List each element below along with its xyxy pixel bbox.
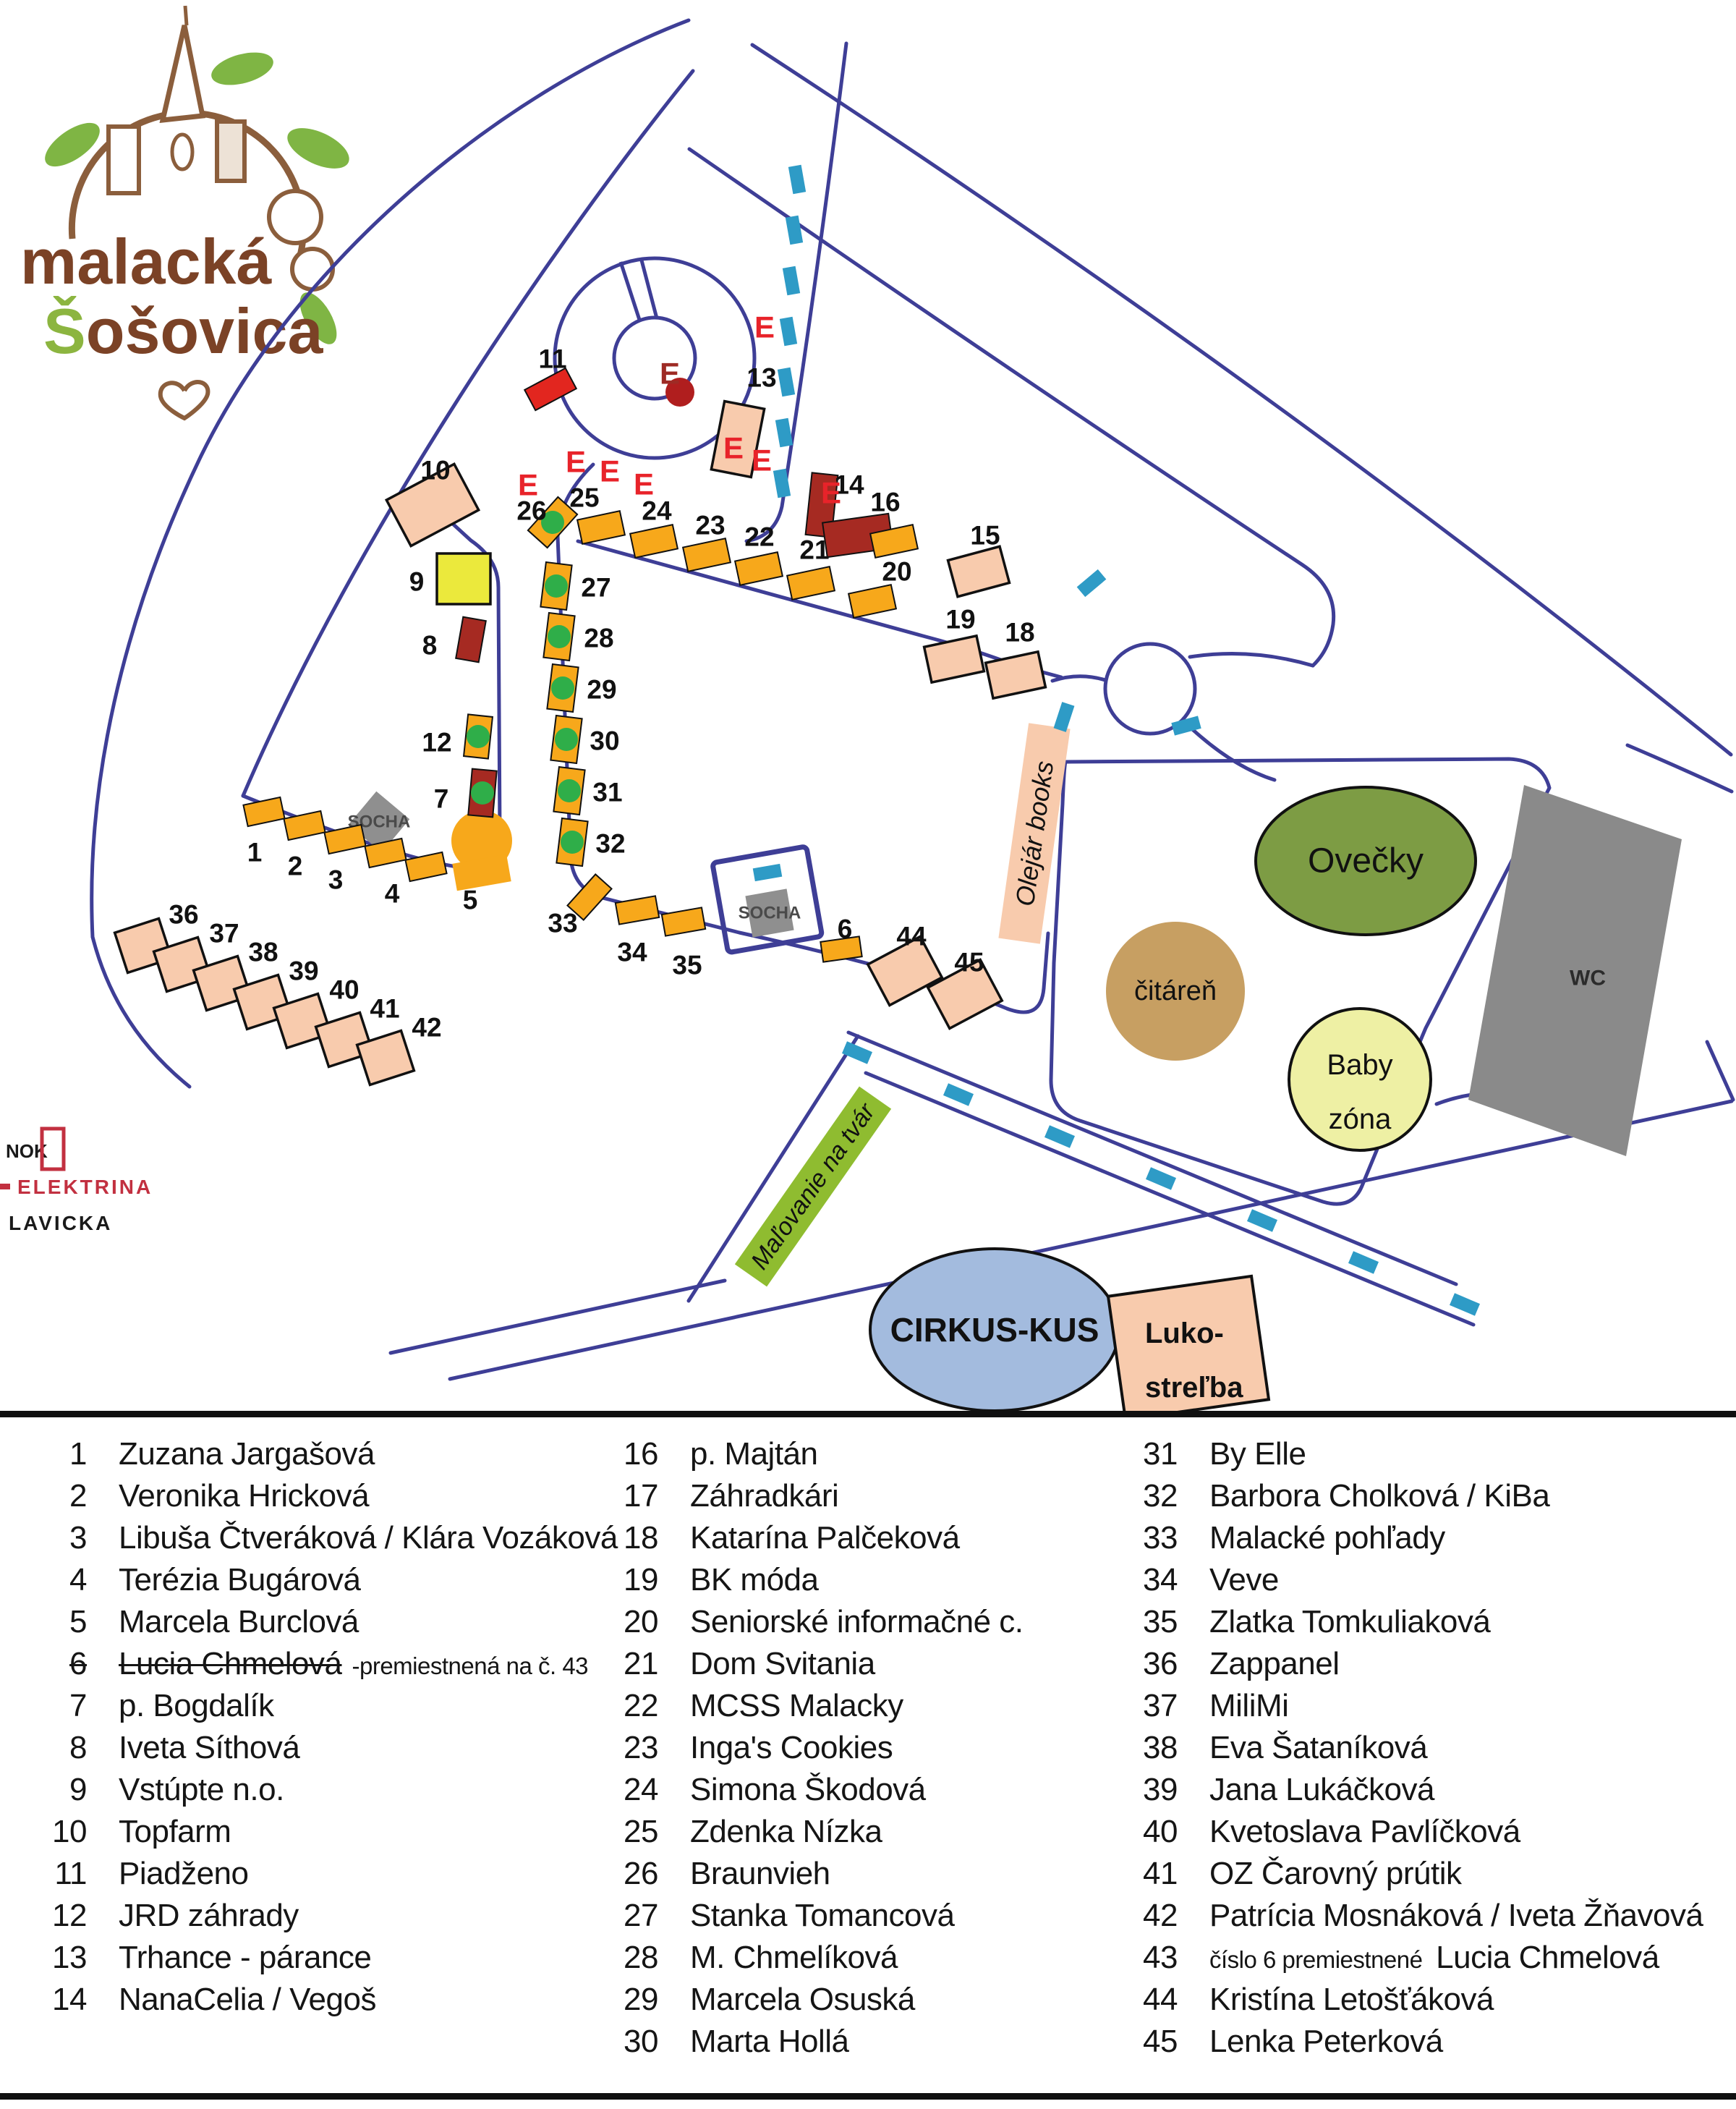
legend-entry-35: 35Zlatka Tomkuliaková (1120, 1604, 1735, 1646)
roundabout-circle (1105, 644, 1195, 734)
logo-leaf-3 (281, 120, 355, 177)
legend-entry-name: Terézia Bugárová (119, 1562, 360, 1598)
electric-dash-5 (775, 418, 793, 448)
stall-23 (683, 538, 731, 572)
legend-entry-name: Lenka Peterková (1209, 2024, 1443, 2060)
stall-33-number: 33 (548, 909, 577, 938)
legend-entry-name-text: Kvetoslava Pavlíčková (1209, 1814, 1520, 1849)
logo-text-s: Š (43, 295, 86, 367)
stall-7 (468, 769, 496, 818)
logo-leaf-2 (208, 46, 276, 90)
legend-entry-name-text: Simona Škodová (690, 1772, 926, 1807)
road-line-15 (391, 1281, 725, 1353)
legend-entry-32: 32Barbora Cholková / KiBa (1120, 1478, 1735, 1520)
legend-entry-8: 8Iveta Síthová (29, 1730, 593, 1772)
stall-35-number: 35 (672, 951, 702, 980)
legend-entry-18: 18Katarína Palčeková (600, 1520, 1107, 1562)
legend-entry-name-text: Barbora Cholková / KiBa (1209, 1478, 1549, 1514)
legend-entry-name-text: Lucia Chmelová (1436, 1940, 1659, 1975)
legend-entry-10: 10Topfarm (29, 1814, 593, 1856)
logo-tower-left (109, 127, 139, 193)
roads-layer (92, 20, 1733, 1379)
stall-32 (556, 818, 587, 866)
stall-9-rect (437, 553, 490, 604)
legend-entry-name-text: Záhradkári (690, 1478, 838, 1514)
electric-dash-2 (783, 266, 800, 296)
legend-entry-number: 9 (29, 1772, 87, 1808)
stall-29 (547, 664, 578, 712)
stall-15-number: 15 (970, 521, 1000, 551)
legend-entry-name: Zuzana Jargašová (119, 1436, 375, 1472)
electric-dash-14 (1146, 1167, 1176, 1189)
legend-entry-name-text: OZ Čarovný prútik (1209, 1856, 1461, 1891)
legend-entry-number: 29 (600, 1982, 658, 2018)
legend-entry-28: 28M. Chmelíková (600, 1940, 1107, 1982)
legend-entry-name: By Elle (1209, 1436, 1306, 1472)
legend-entry-31: 31By Elle (1120, 1436, 1735, 1478)
electricity-marker-2: E (518, 468, 538, 502)
electric-dash-16 (1348, 1251, 1379, 1273)
road-line-1 (243, 71, 693, 796)
legend-entry-number: 17 (600, 1478, 658, 1514)
legend-entry-number: 12 (29, 1898, 87, 1934)
legend-entry-name-text: Inga's Cookies (690, 1730, 893, 1765)
legend-entry-name-text: Eva Šataníková (1209, 1730, 1427, 1765)
legend-entry-name-text: Jana Lukáčková (1209, 1772, 1434, 1807)
key-lavicka-label: LAVICKA (9, 1212, 112, 1234)
legend-column-3: 31By Elle32Barbora Cholková / KiBa33Mala… (1120, 1436, 1735, 2066)
legend-entry-name: NanaCelia / Vegoš (119, 1982, 376, 2018)
legend-entry-name-text: Zdenka Nízka (690, 1814, 882, 1849)
map-key: NOK ELEKTRINA LAVICKA (0, 1129, 153, 1234)
electric-dash-8 (1054, 702, 1075, 732)
road-line-6 (752, 45, 1731, 755)
logo-leaf-1 (38, 114, 106, 174)
legend-entry-4: 4Terézia Bugárová (29, 1562, 593, 1604)
legend-top-rule (0, 1411, 1736, 1417)
road-line-10 (1190, 654, 1313, 666)
legend-entry-name-text: Libuša Čtveráková / Klára Vozáková (119, 1520, 618, 1556)
stall-44-number: 44 (896, 922, 927, 951)
stall-24 (630, 525, 678, 558)
logo-berry-2 (292, 249, 333, 289)
legend-entry-name: číslo 6 premiestnené Lucia Chmelová (1209, 1940, 1659, 1976)
legend-entry-name-text: p. Majtán (690, 1436, 817, 1472)
legend-entry-number: 31 (1120, 1436, 1178, 1472)
stall-29-number: 29 (587, 675, 616, 705)
stall-1-number: 1 (247, 838, 263, 867)
event-site-map: malacká Šošovica Olejár booksOvečkyčitár… (0, 0, 1736, 1411)
stall-7-green-dot (471, 781, 494, 805)
baby-zona-label: Baby (1327, 1049, 1392, 1081)
stall-1 (243, 797, 284, 826)
stall-4-number: 4 (385, 879, 400, 909)
legend-entry-12: 12JRD záhrady (29, 1898, 593, 1940)
legend-entry-number: 5 (29, 1604, 87, 1640)
legend-entry-name-text: Patrícia Mosnáková / Iveta Žňavová (1209, 1898, 1703, 1933)
legend-entry-name: MiliMi (1209, 1688, 1288, 1724)
stall-7-number: 7 (434, 784, 449, 814)
legend-entry-name: Malacké pohľady (1209, 1520, 1445, 1556)
legend-entry-name: BK móda (690, 1562, 818, 1598)
stall-2-number: 2 (288, 852, 303, 881)
legend-entry-name: Trhance - párance (119, 1940, 371, 1976)
legend-entry-number: 44 (1120, 1982, 1178, 2018)
stall-9-number: 9 (409, 567, 425, 597)
logo-text-line1: malacká (20, 226, 272, 297)
stall-20-number: 20 (882, 557, 911, 587)
stall-22-number: 22 (744, 522, 774, 552)
legend-entry-name-text: Lenka Peterková (1209, 2024, 1443, 2059)
stall-5-number: 5 (463, 886, 478, 915)
legend-entry-38: 38Eva Šataníková (1120, 1730, 1735, 1772)
stall-34-rect (616, 896, 659, 924)
legend-entry-1: 1Zuzana Jargašová (29, 1436, 593, 1478)
stall-15-rect (948, 546, 1010, 596)
stall-42-number: 42 (412, 1013, 441, 1043)
legend-entry-number: 27 (600, 1898, 658, 1934)
legend-entry-name: Zdenka Nízka (690, 1814, 882, 1850)
map-canvas: malacká Šošovica Olejár booksOvečkyčitár… (0, 0, 1736, 1411)
road-line-7 (689, 149, 1334, 666)
legend-entry-name-text: Stanka Tomancová (690, 1898, 954, 1933)
legend-entry-14: 14NanaCelia / Vegoš (29, 1982, 593, 2024)
stall-18-number: 18 (1005, 618, 1034, 648)
legend-entry-11: 11Piadženo (29, 1856, 593, 1898)
legend-entry-name: Marcela Burclová (119, 1604, 359, 1640)
legend-entry-43: 43číslo 6 premiestnené Lucia Chmelová (1120, 1940, 1735, 1982)
legend-entry-number: 41 (1120, 1856, 1178, 1892)
logo-spire (163, 25, 203, 120)
legend-entry-name: Veve (1209, 1562, 1279, 1598)
legend-entry-name: MCSS Malacky (690, 1688, 903, 1724)
legend-entry-name-text: Marcela Burclová (119, 1604, 359, 1639)
legend-entry-name: Piadženo (119, 1856, 248, 1892)
stall-41-number: 41 (370, 994, 399, 1024)
stall-22-rect (735, 552, 783, 585)
legend-entry-name: Jana Lukáčková (1209, 1772, 1434, 1808)
legend-entry-17: 17Záhradkári (600, 1478, 1107, 1520)
legend-entry-name: Stanka Tomancová (690, 1898, 954, 1934)
stall-16-number: 16 (870, 488, 900, 517)
legend-entry-name-text: Terézia Bugárová (119, 1562, 360, 1597)
stall-28-number: 28 (584, 624, 613, 653)
stall-30 (550, 716, 582, 763)
legend-entry-note: -premiestnená na č. 43 (352, 1652, 589, 1680)
legend-entry-name-text: Veronika Hricková (119, 1478, 369, 1514)
legend-entry-name: Seniorské informačné c. (690, 1604, 1024, 1640)
legend-entry-name-text: JRD záhrady (119, 1898, 299, 1933)
legend-entry-number: 3 (29, 1520, 87, 1556)
legend-entry-name: Kristína Letošťáková (1209, 1982, 1494, 2018)
legend-entry-number: 8 (29, 1730, 87, 1766)
legend-entry-5: 5Marcela Burclová (29, 1604, 593, 1646)
legend-bottom-rule (0, 2093, 1736, 2100)
legend-entry-name-text: Lucia Chmelová (119, 1646, 342, 1681)
stall-31-number: 31 (592, 778, 622, 807)
legend-entry-name-text: Dom Svitania (690, 1646, 875, 1681)
legend-entry-name-text: By Elle (1209, 1436, 1306, 1472)
stall-27-green-dot (545, 574, 568, 598)
electric-dash-1 (786, 216, 803, 245)
logo-window (172, 135, 192, 169)
stall-25-number: 25 (569, 483, 599, 513)
stall-30-green-dot (555, 728, 578, 751)
legend-entry-number: 36 (1120, 1646, 1178, 1682)
legend-entry-name-text: MCSS Malacky (690, 1688, 903, 1723)
legend-column-2: 16p. Majtán17Záhradkári18Katarína Palček… (600, 1436, 1107, 2066)
electricity-marker-6: E (723, 431, 744, 465)
stall-32-number: 32 (595, 829, 625, 859)
ovecky-label: Ovečky (1308, 842, 1424, 880)
socha-label-2: SOCHA (739, 904, 801, 923)
legend-entry-name: Topfarm (119, 1814, 231, 1850)
electric-dash-0 (788, 165, 806, 195)
legend-entry-number: 37 (1120, 1688, 1178, 1724)
legend-entry-40: 40Kvetoslava Pavlíčková (1120, 1814, 1735, 1856)
legend-entry-number: 28 (600, 1940, 658, 1976)
legend-entry-number: 22 (600, 1688, 658, 1724)
legend-entry-30: 30Marta Hollá (600, 2024, 1107, 2066)
legend-entry-number: 42 (1120, 1898, 1178, 1934)
electricity-marker-1: E (660, 357, 680, 391)
luko-strelba-label: Luko- (1145, 1317, 1224, 1349)
stall-11 (524, 368, 576, 410)
legend-entry-number: 10 (29, 1814, 87, 1850)
legend-entry-33: 33Malacké pohľady (1120, 1520, 1735, 1562)
legend-entry-20: 20Seniorské informačné c. (600, 1604, 1107, 1646)
legend-entry-number: 45 (1120, 2024, 1178, 2060)
electric-dash-12 (943, 1083, 974, 1106)
legend-entry-name-text: Malacké pohľady (1209, 1520, 1445, 1556)
stall-36-number: 36 (169, 900, 198, 930)
electricity-marker-0: E (754, 310, 775, 344)
legend-entry-name: Patrícia Mosnáková / Iveta Žňavová (1209, 1898, 1703, 1934)
stall-37-number: 37 (209, 919, 239, 949)
malacka-sosovica-logo: malacká Šošovica (20, 6, 355, 418)
legend-entry-number: 21 (600, 1646, 658, 1682)
stall-10-number: 10 (420, 456, 450, 485)
legend-entry-name-text: NanaCelia / Vegoš (119, 1982, 376, 2017)
legend-entry-number: 6 (29, 1646, 87, 1682)
legend-entry-number: 33 (1120, 1520, 1178, 1556)
stall-34-number: 34 (617, 938, 647, 967)
legend-entry-name: Eva Šataníková (1209, 1730, 1427, 1766)
legend-entry-29: 29Marcela Osuská (600, 1982, 1107, 2024)
legend-entry-34: 34Veve (1120, 1562, 1735, 1604)
stall-28-green-dot (548, 625, 571, 648)
electric-dash-13 (1044, 1125, 1075, 1147)
electric-dash-17 (1450, 1293, 1480, 1315)
legend-entry-number: 35 (1120, 1604, 1178, 1640)
legend-entry-number: 43 (1120, 1940, 1178, 1976)
legend-entry-name: Marta Hollá (690, 2024, 848, 2060)
stall-25-rect (577, 511, 625, 544)
stall-21-rect (787, 566, 835, 600)
stall-40-number: 40 (329, 975, 359, 1005)
stall-23-number: 23 (695, 511, 725, 540)
legend-entry-name-text: Marcela Osuská (690, 1982, 915, 2017)
malovanie-na-tvar-label: Maľovanie na tvár (746, 1098, 881, 1275)
legend-entry-42: 42Patrícia Mosnáková / Iveta Žňavová (1120, 1898, 1735, 1940)
legend-entry-name-text: BK móda (690, 1562, 818, 1597)
fountain-neck-1 (641, 258, 657, 318)
legend-entry-number: 40 (1120, 1814, 1178, 1850)
legend-entry-name: Zlatka Tomkuliaková (1209, 1604, 1490, 1640)
logo-text-line2: Šošovica (43, 295, 323, 367)
legend-entry-number: 38 (1120, 1730, 1178, 1766)
legend-entry-number: 7 (29, 1688, 87, 1724)
festival-map-page: { "logo": {"line1":"malacká","line2_s":"… (0, 0, 1736, 2109)
stall-19-number: 19 (945, 605, 975, 635)
electric-dash-10 (753, 864, 783, 881)
legend-entry-name-text: Piadženo (119, 1856, 248, 1891)
stall-25 (577, 511, 625, 544)
legend-entry-name: Katarína Palčeková (690, 1520, 960, 1556)
legend-entry-name: Vstúpte n.o. (119, 1772, 284, 1808)
legend-entry-21: 21Dom Svitania (600, 1646, 1107, 1688)
legend-entry-name: Veronika Hricková (119, 1478, 369, 1514)
stall-35-rect (662, 907, 705, 935)
legend-entry-name: p. Bogdalík (119, 1688, 274, 1724)
stall-38-number: 38 (248, 938, 278, 967)
legend-entry-13: 13Trhance - párance (29, 1940, 593, 1982)
baby-zona-label-2: zóna (1329, 1103, 1392, 1135)
legend-entry-name: Braunvieh (690, 1856, 830, 1892)
legend-entry-name-text: Marta Hollá (690, 2024, 848, 2059)
stall-34 (616, 896, 659, 924)
stall-13-number: 13 (746, 363, 776, 393)
legend-entry-name-text: Iveta Síthová (119, 1730, 299, 1765)
legend-entry-name: Simona Škodová (690, 1772, 926, 1808)
electricity-marker-7: E (752, 444, 772, 478)
legend-entry-name: Marcela Osuská (690, 1982, 915, 2018)
legend-entry-25: 25Zdenka Nízka (600, 1814, 1107, 1856)
vendor-legend: 1Zuzana Jargašová2Veronika Hricková3Libu… (0, 1417, 1736, 2091)
electric-dash-7 (1077, 569, 1107, 597)
stall-8-rect (456, 617, 486, 663)
legend-entry-22: 22MCSS Malacky (600, 1688, 1107, 1730)
electric-dash-15 (1247, 1209, 1277, 1231)
logo-heart-icon (161, 382, 208, 418)
legend-entry-6: 6Lucia Chmelová-premiestnená na č. 43 (29, 1646, 593, 1688)
legend-entry-44: 44Kristína Letošťáková (1120, 1982, 1735, 2024)
stall-22 (735, 552, 783, 585)
stall-9 (437, 553, 490, 604)
legend-entry-number: 11 (29, 1856, 87, 1892)
legend-entry-45: 45Lenka Peterková (1120, 2024, 1735, 2066)
stall-30-number: 30 (590, 726, 619, 756)
stall-1-rect (243, 797, 284, 826)
stall-21-number: 21 (799, 535, 829, 565)
legend-entry-27: 27Stanka Tomancová (600, 1898, 1107, 1940)
legend-column-1: 1Zuzana Jargašová2Veronika Hricková3Libu… (29, 1436, 593, 2024)
road-line-9 (1188, 726, 1275, 780)
legend-entry-36: 36Zappanel (1120, 1646, 1735, 1688)
legend-entry-name: Dom Svitania (690, 1646, 875, 1682)
logo-tower-right (217, 122, 244, 181)
legend-entry-number: 18 (600, 1520, 658, 1556)
stall-8 (456, 617, 486, 663)
electricity-marker-8: E (821, 476, 841, 510)
key-elektrina-label: ELEKTRINA (17, 1176, 153, 1198)
stall-12-green-dot (467, 725, 490, 748)
legend-entry-name-text: p. Bogdalík (119, 1688, 274, 1723)
logo-berry-1 (269, 191, 321, 243)
stall-19 (924, 636, 984, 682)
legend-entry-number: 1 (29, 1436, 87, 1472)
wc-label: WC (1570, 967, 1606, 990)
legend-entry-name-text: Topfarm (119, 1814, 231, 1849)
electricity-marker-3: E (566, 445, 586, 479)
legend-entry-3: 3Libuša Čtveráková / Klára Vozáková (29, 1520, 593, 1562)
legend-entry-name-text: MiliMi (1209, 1688, 1288, 1723)
legend-entry-prefix: číslo 6 premiestnené (1209, 1946, 1429, 1973)
legend-entry-23: 23Inga's Cookies (600, 1730, 1107, 1772)
stall-32-green-dot (561, 831, 584, 854)
logo-flagpole (185, 6, 187, 25)
legend-entry-number: 25 (600, 1814, 658, 1850)
road-line-8 (1052, 676, 1105, 681)
citaren-label: čitáreň (1134, 976, 1217, 1006)
legend-entry-name: Zappanel (1209, 1646, 1339, 1682)
legend-entry-name-text: M. Chmelíková (690, 1940, 898, 1975)
legend-entry-name: Kvetoslava Pavlíčková (1209, 1814, 1520, 1850)
legend-entry-number: 4 (29, 1562, 87, 1598)
stall-6-number: 6 (838, 915, 853, 944)
stall-23-rect (683, 538, 731, 572)
legend-entry-number: 2 (29, 1478, 87, 1514)
legend-entry-41: 41OZ Čarovný prútik (1120, 1856, 1735, 1898)
legend-entry-24: 24Simona Škodová (600, 1772, 1107, 1814)
legend-entry-39: 39Jana Lukáčková (1120, 1772, 1735, 1814)
legend-entry-number: 20 (600, 1604, 658, 1640)
legend-entry-name: Inga's Cookies (690, 1730, 893, 1766)
legend-entry-name-text: Trhance - párance (119, 1940, 371, 1975)
stall-3-number: 3 (328, 865, 344, 895)
stall-11-rect (524, 368, 576, 410)
fountain-neck-0 (621, 262, 639, 320)
legend-entry-name-text: Vstúpte n.o. (119, 1772, 284, 1807)
legend-entry-name: Lucia Chmelová (119, 1646, 342, 1682)
legend-entry-number: 16 (600, 1436, 658, 1472)
legend-entry-name-text: Seniorské informačné c. (690, 1604, 1024, 1639)
stall-20 (848, 585, 896, 618)
stall-39-number: 39 (289, 956, 318, 986)
stall-24-rect (630, 525, 678, 558)
legend-entry-name: Libuša Čtveráková / Klára Vozáková (119, 1520, 618, 1556)
stall-27-number: 27 (581, 573, 610, 603)
legend-entry-number: 30 (600, 2024, 658, 2060)
legend-entry-37: 37MiliMi (1120, 1688, 1735, 1730)
legend-entry-number: 32 (1120, 1478, 1178, 1514)
legend-entry-number: 34 (1120, 1562, 1178, 1598)
stall-19-rect (924, 636, 984, 682)
key-elektrina-arrow-icon (0, 1184, 10, 1189)
legend-entry-name-text: Zuzana Jargašová (119, 1436, 375, 1472)
stall-12-number: 12 (422, 728, 451, 758)
legend-entry-number: 14 (29, 1982, 87, 2018)
legend-entry-name-text: Veve (1209, 1562, 1279, 1597)
legend-entry-name: JRD záhrady (119, 1898, 299, 1934)
stall-12 (464, 714, 493, 758)
shapes-layer: Olejár booksOvečkyčitáreňBabyzónaWCMaľov… (115, 368, 1682, 1411)
legend-entry-name-text: Zlatka Tomkuliaková (1209, 1604, 1490, 1639)
electric-dash-4 (778, 368, 795, 397)
electricity-marker-4: E (600, 454, 620, 488)
stall-31 (553, 767, 584, 815)
stall-31-green-dot (558, 779, 581, 802)
